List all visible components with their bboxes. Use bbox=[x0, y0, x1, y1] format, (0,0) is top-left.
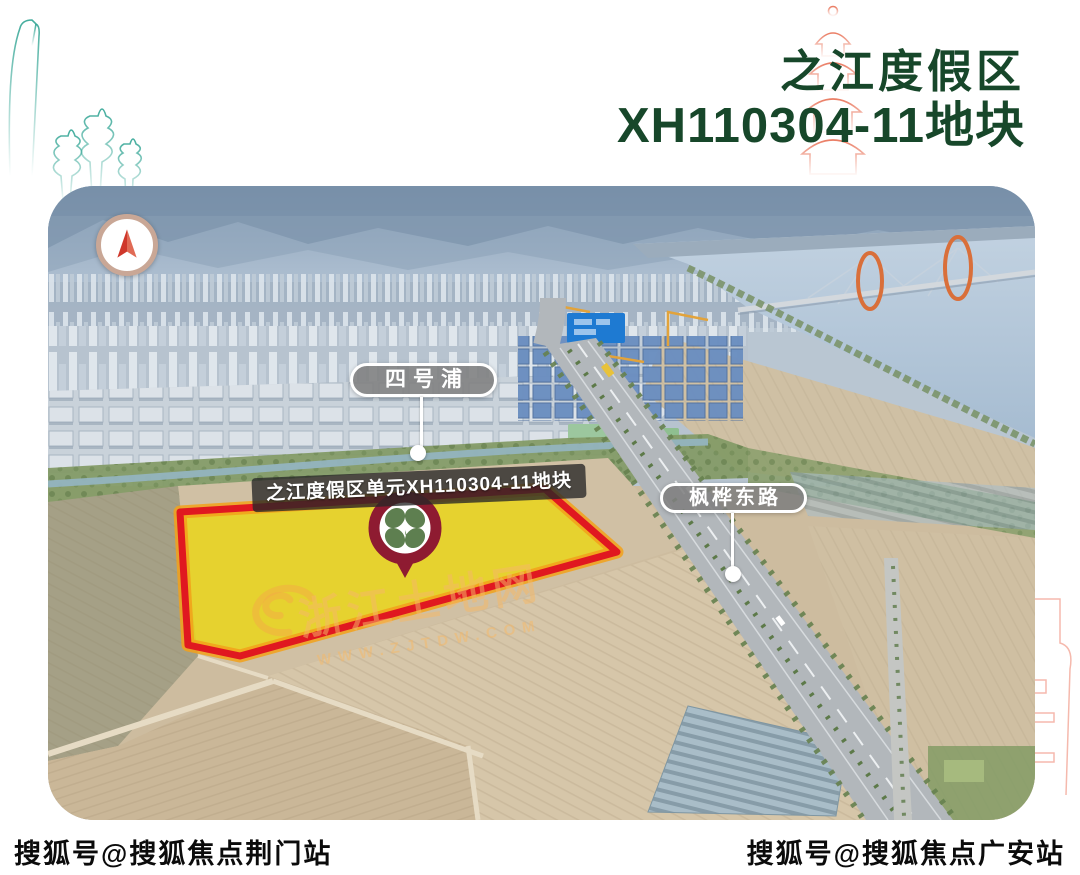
title-district: 之江度假区 bbox=[617, 46, 1025, 98]
watermark-swirl-icon bbox=[229, 570, 324, 647]
north-arrow-icon bbox=[104, 221, 150, 269]
parcel-boundary bbox=[48, 186, 1035, 820]
label-anchor-dot bbox=[725, 566, 741, 582]
page-title: 之江度假区 XH110304-11地块 bbox=[617, 46, 1025, 154]
compass-north-indicator bbox=[96, 214, 158, 276]
map-label-fenghua-east-road: 枫桦东路 bbox=[660, 483, 807, 513]
map-label-sihaopu: 四号浦 bbox=[350, 363, 497, 397]
label-connector-line bbox=[420, 397, 423, 447]
title-parcel-code: XH110304-11地块 bbox=[617, 98, 1025, 154]
label-anchor-dot bbox=[410, 445, 426, 461]
city-skyline-decoration bbox=[2, 16, 152, 201]
label-connector-line bbox=[731, 513, 734, 568]
footer-account-right: 搜狐号@搜狐焦点广安站 bbox=[747, 832, 1065, 871]
aerial-map: 浙江土地网 WWW.ZJTDW.COM 之江度假区单元XH110304-11地块… bbox=[48, 186, 1035, 820]
footer-account-left: 搜狐号@搜狐焦点荆门站 bbox=[14, 832, 332, 871]
